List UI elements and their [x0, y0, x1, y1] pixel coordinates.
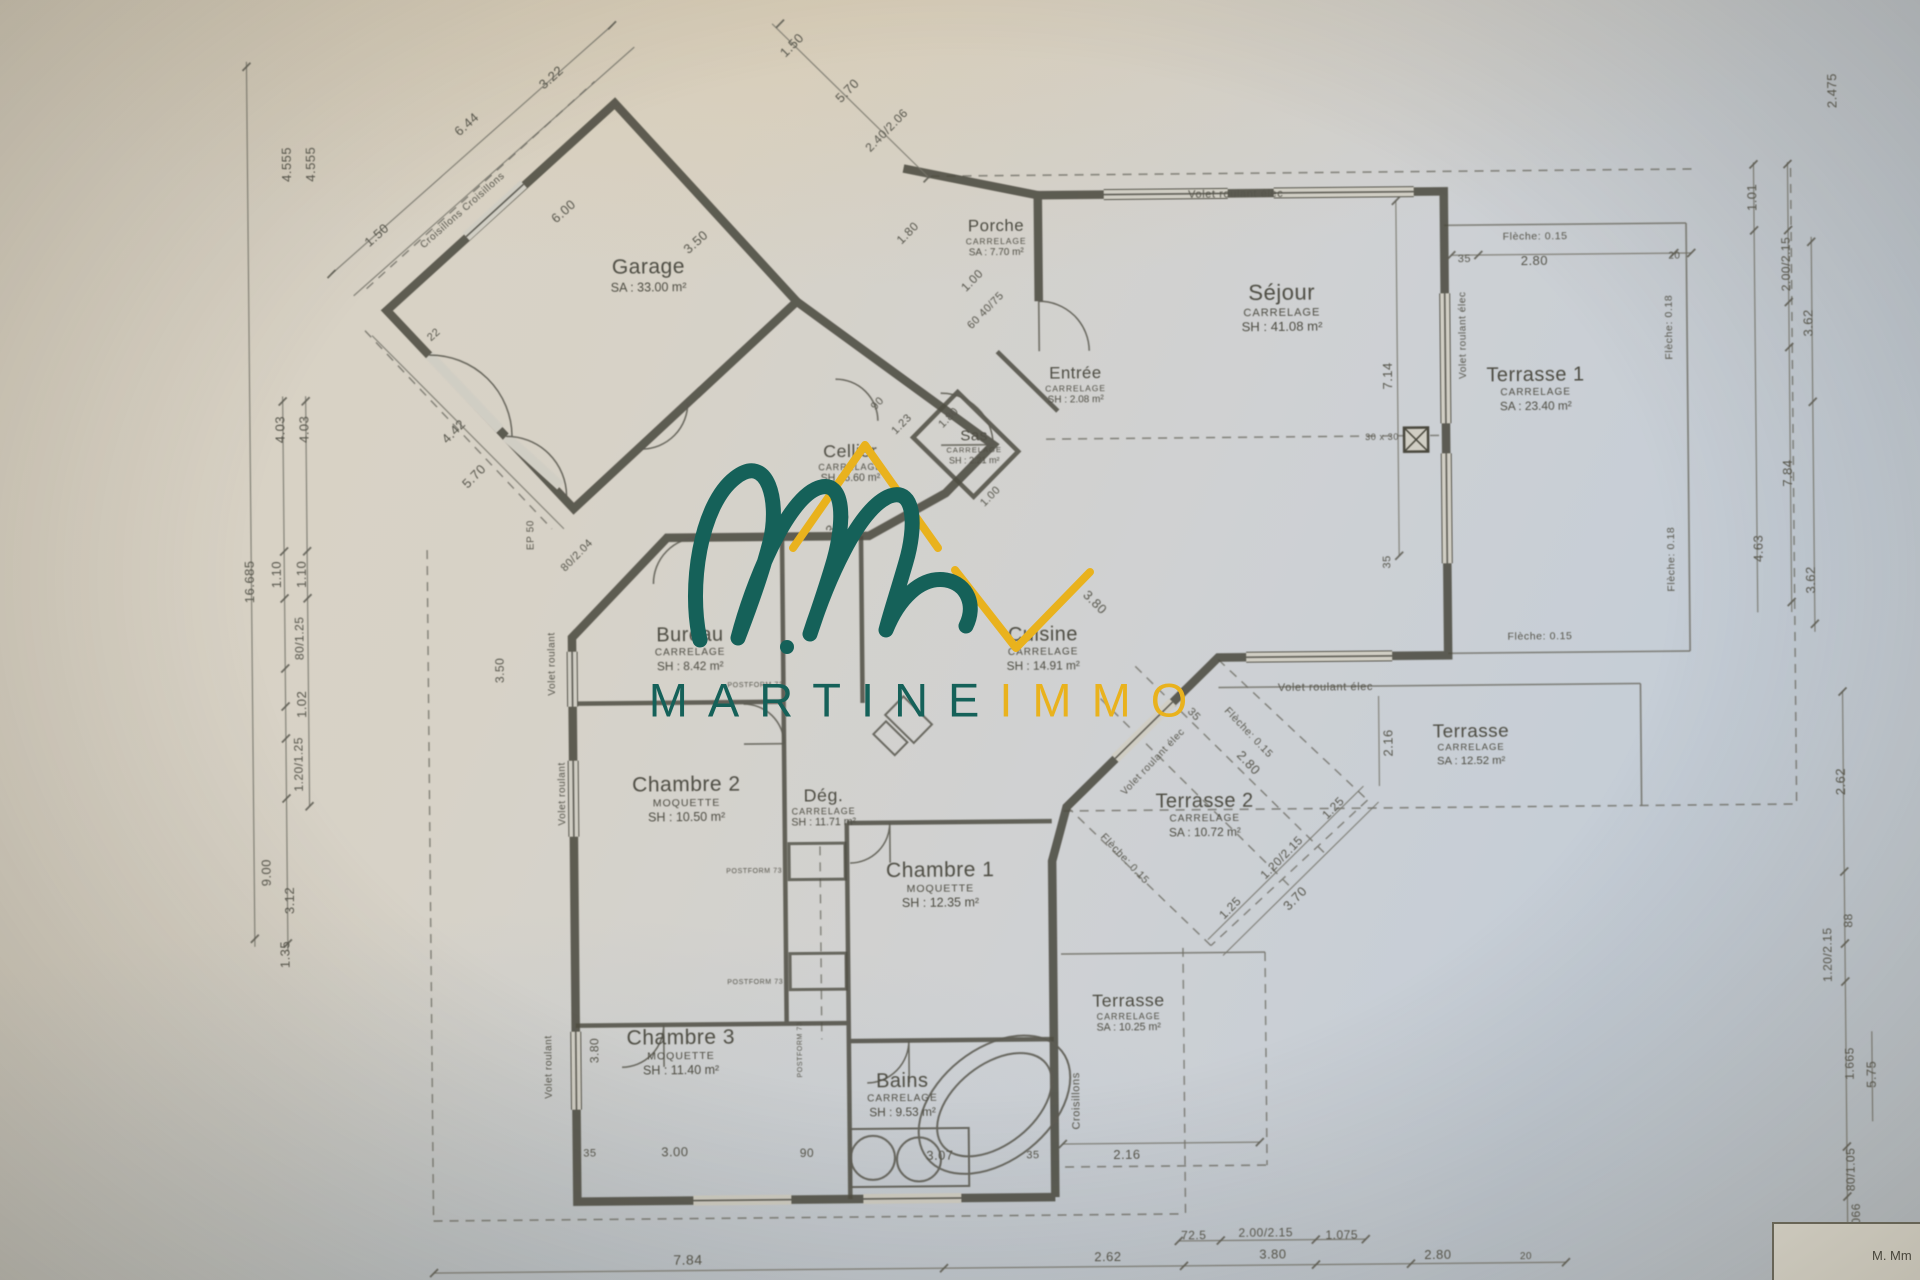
dimension-39: 1.10	[270, 561, 285, 588]
annotation-15: Flèche: 0.15	[1503, 231, 1568, 243]
dimension-6: 4.42	[439, 417, 469, 447]
dimension-15: 60 40/75	[965, 290, 1007, 332]
annotation-5: Volet roulant	[557, 762, 569, 826]
room-label-entree: EntréeCARRELAGESH : 2.08 m²	[1045, 364, 1106, 406]
annotation-0: Volet roulant élec	[1188, 188, 1283, 201]
room-label-degagement: Dég.CARRELAGESH : 11.71 m²	[791, 785, 856, 829]
room-label-chambre1: Chambre 1MOQUETTESH : 12.35 m²	[886, 858, 995, 910]
dimension-14: 1.00	[959, 267, 986, 295]
dimension-23: 1.25	[1217, 895, 1244, 923]
annotation-13: POSTFORM 73	[797, 1022, 805, 1078]
dimension-26: 3.70	[1281, 884, 1311, 914]
dimension-54: 2.62	[1834, 768, 1849, 795]
dimension-16: 90	[869, 395, 887, 413]
dimension-56: 1.20/2.15	[1821, 927, 1835, 982]
annotation-11: POSTFORM 73	[726, 868, 782, 876]
plan-labels: GarageSA : 33.00 m²PorcheCARRELAGESA : 7…	[0, 0, 1920, 1280]
dimension-36: 4.03	[274, 416, 289, 443]
annotation-2: Volet roulant élec	[1457, 291, 1469, 379]
dimension-8: 3.00	[823, 508, 853, 538]
annotation-4: Volet roulant	[546, 632, 558, 696]
dimension-32: 2.16	[1382, 729, 1397, 756]
room-label-terrasse_est: TerrasseCARRELAGESA : 12.52 m²	[1433, 721, 1510, 768]
dimension-61: 35	[583, 1147, 596, 1159]
annotation-12: POSTFORM 73	[727, 979, 783, 987]
room-label-chambre2: Chambre 2MOQUETTESH : 10.50 m²	[632, 772, 741, 824]
dimension-49: 2.00/2.15	[1779, 237, 1793, 292]
dimension-18: 1.80	[936, 405, 961, 430]
room-label-garage: GarageSA : 33.00 m²	[610, 255, 686, 294]
room-label-terrasse1: Terrasse 1CARRELAGESA : 23.40 m²	[1486, 364, 1585, 414]
dimension-75: 3.80	[588, 1038, 602, 1063]
dimension-47: 2.475	[1825, 73, 1840, 108]
dimension-64: 3.07	[926, 1149, 953, 1164]
dimension-3: 6.00	[549, 197, 579, 226]
dimension-1: 3.22	[537, 63, 567, 92]
dimension-38: 16.685	[243, 560, 258, 603]
dimension-46: 1.35	[279, 941, 294, 968]
dimension-68: 72.5	[1181, 1229, 1206, 1243]
room-label-cuisine: CuisineCARRELAGESH : 14.91 m²	[1006, 623, 1080, 672]
dimension-45: 3.12	[283, 887, 298, 914]
room-label-terrasse2: Terrasse 2CARRELAGESA : 10.72 m²	[1155, 790, 1254, 840]
dimension-55: 88	[1842, 913, 1856, 927]
annotation-6: Volet roulant	[543, 1035, 555, 1099]
dimension-62: 3.00	[661, 1145, 688, 1160]
dimension-29: 20	[1668, 250, 1680, 261]
dimension-30: 7.14	[1381, 362, 1396, 389]
dimension-28: 2.80	[1521, 254, 1548, 269]
room-label-sejour: SéjourCARRELAGESH : 41.08 m²	[1241, 281, 1322, 335]
dimension-13: 1.80	[894, 220, 921, 248]
annotation-3: Volet roulant élec	[1119, 727, 1187, 798]
dimension-27: 35	[1458, 253, 1471, 265]
annotation-17: Flèche: 0.18	[1664, 295, 1676, 360]
dimension-31: 35	[1381, 555, 1393, 568]
annotation-10: POSTFORM 73	[727, 682, 783, 690]
room-label-porche: PorcheCARRELAGESA : 7.70 m²	[966, 217, 1027, 259]
dimension-63: 90	[800, 1147, 814, 1161]
dimension-10: 1.50	[778, 31, 808, 61]
dimension-21: 35	[1185, 706, 1203, 724]
dimension-4: 3.50	[681, 228, 711, 257]
dimension-53: 3.62	[1804, 566, 1819, 593]
dimension-34: 4.555	[280, 147, 295, 182]
room-label-terrasse_sud: TerrasseCARRELAGESA : 10.25 m²	[1092, 990, 1165, 1035]
dimension-41: 80/1.25	[293, 616, 307, 660]
annotation-18: Flèche: 0.18	[1666, 527, 1678, 592]
room-label-bureau: BureauCARRELAGESH : 8.42 m²	[655, 624, 726, 673]
dimension-67: 2.62	[1094, 1250, 1121, 1265]
dimension-72: 2.80	[1424, 1248, 1451, 1263]
dimension-74: 3.50	[493, 658, 507, 683]
annotation-9: Croisillons Croisillons	[418, 170, 507, 251]
floor-plan: GarageSA : 33.00 m²PorcheCARRELAGESA : 7…	[0, 0, 1920, 1280]
title-block: M. Mm	[1772, 1222, 1920, 1280]
dimension-40: 1.10	[295, 561, 310, 588]
dimension-9: 80/2.04	[559, 537, 596, 574]
dimension-69: 2.00/2.15	[1238, 1226, 1293, 1240]
dimension-11: 5.70	[833, 76, 863, 106]
dimension-73: 20	[1520, 1251, 1532, 1262]
dimension-43: 1.20/1.25	[292, 737, 306, 792]
dimension-20: 3.80	[1080, 588, 1110, 618]
dimension-37: 4.03	[298, 416, 313, 443]
dimension-12: 2.40/2.06	[863, 107, 911, 155]
dimension-25: 1.25	[1320, 795, 1347, 823]
annotation-20: Flèche: 0.15	[1097, 832, 1150, 887]
dimension-2: 1.50	[362, 221, 392, 250]
dimension-57: 1.665	[1843, 1047, 1857, 1080]
dimension-59: 80/1.05	[1844, 1148, 1858, 1192]
dimension-35: 4.555	[304, 147, 319, 182]
dimension-52: 4.63	[1752, 535, 1767, 562]
dimension-7: 5.70	[460, 462, 490, 492]
annotation-14: 30 x 30	[1365, 432, 1399, 442]
dimension-50: 3.62	[1802, 309, 1817, 336]
dimension-44: 9.00	[260, 859, 275, 886]
listing-photo: GarageSA : 33.00 m²PorcheCARRELAGESA : 7…	[0, 0, 1920, 1280]
dimension-51: 7.84	[1781, 459, 1796, 486]
dimension-65: 35	[1026, 1149, 1039, 1161]
dimension-58: 5.75	[1865, 1061, 1880, 1088]
dimension-70: 1.075	[1325, 1228, 1358, 1242]
annotation-7: EP 50	[525, 520, 536, 550]
dimension-17: 1.23	[889, 412, 914, 437]
dimension-24: 1.20/2.15	[1258, 834, 1306, 882]
dimension-33: 2.16	[1113, 1148, 1140, 1163]
dimension-48: 1.01	[1745, 184, 1760, 211]
title-block-text: M. Mm	[1872, 1248, 1912, 1263]
room-label-chambre3: Chambre 3MOQUETTESH : 11.40 m²	[627, 1026, 736, 1078]
dimension-19: 1.00	[978, 484, 1003, 509]
room-label-sas: SasCARRELAGESH : 2.21 m²	[946, 428, 1002, 466]
dimension-42: 1.02	[295, 691, 310, 718]
annotation-1: Volet roulant élec	[1278, 681, 1373, 694]
annotation-16: Flèche: 0.15	[1507, 631, 1572, 643]
room-label-cellier: CellierCARRELAGESH : 6.60 m²	[818, 441, 882, 485]
room-label-bains: BainsCARRELAGESH : 9.53 m²	[867, 1070, 938, 1119]
annotation-8: Croisillons	[1070, 1072, 1083, 1129]
dimension-0: 6.44	[452, 110, 482, 139]
dimension-71: 3.80	[1259, 1248, 1286, 1263]
dimension-5: 22	[425, 326, 443, 344]
dimension-66: 7.84	[673, 1253, 702, 1269]
